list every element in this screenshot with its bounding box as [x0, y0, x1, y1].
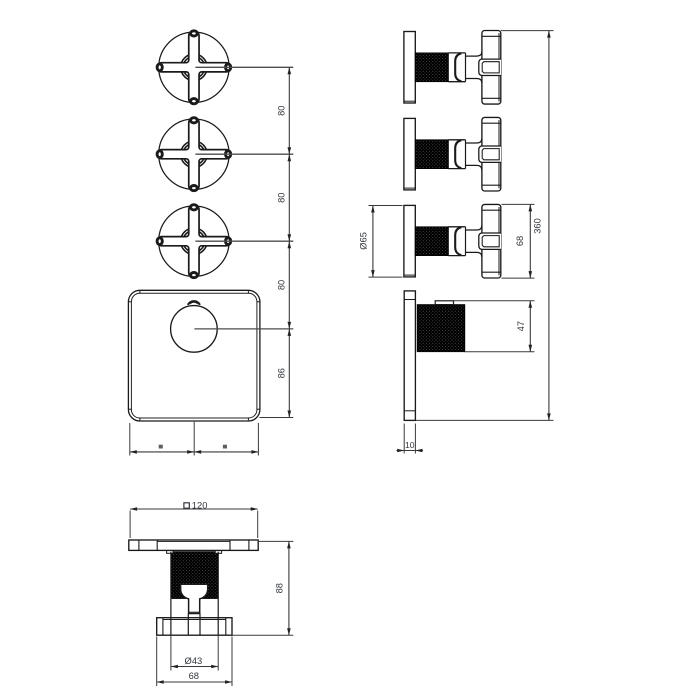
svg-text:360: 360 — [533, 218, 543, 234]
svg-text:86: 86 — [277, 368, 287, 378]
svg-text:68: 68 — [189, 670, 199, 681]
svg-text:88: 88 — [275, 583, 285, 593]
svg-text:80: 80 — [277, 106, 287, 116]
svg-text:Ø43: Ø43 — [185, 655, 203, 666]
svg-text:Ø65: Ø65 — [359, 232, 369, 250]
svg-text:80: 80 — [277, 193, 287, 203]
svg-text:47: 47 — [516, 321, 526, 331]
svg-text:80: 80 — [277, 280, 287, 290]
svg-text:10: 10 — [405, 440, 415, 450]
svg-text:68: 68 — [515, 236, 525, 246]
